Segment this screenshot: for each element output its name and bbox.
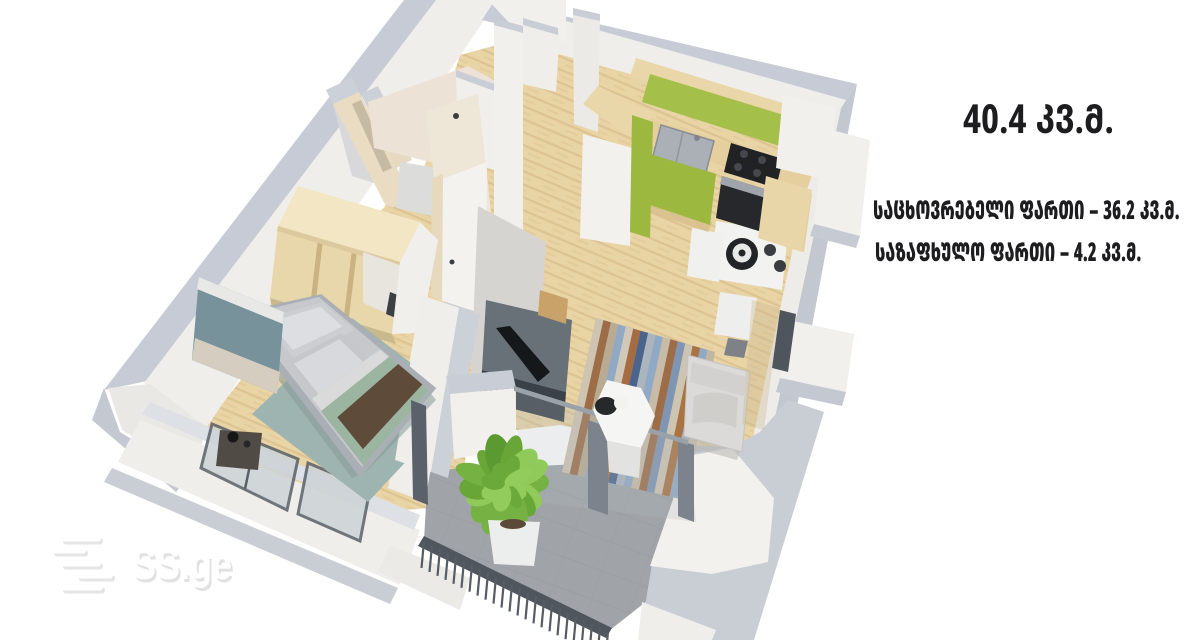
svg-text:SS.ge: SS.ge [132, 540, 232, 589]
